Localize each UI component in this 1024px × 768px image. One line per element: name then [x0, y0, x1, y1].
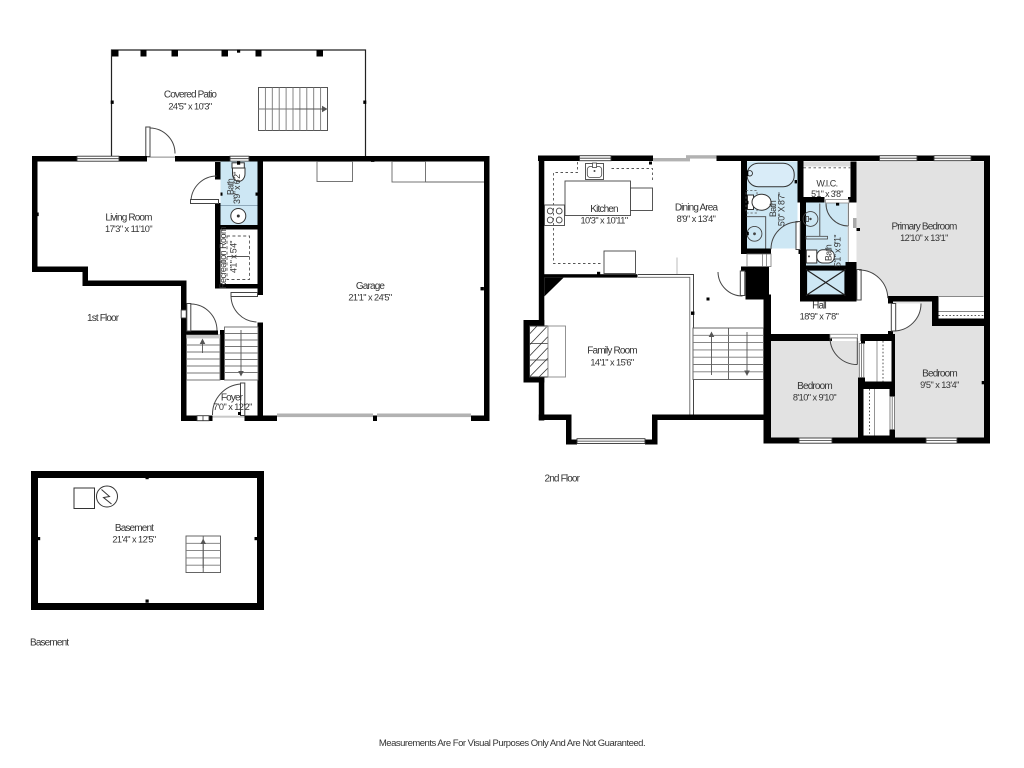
- svg-text:5'1" x 3'8": 5'1" x 3'8": [811, 189, 843, 199]
- svg-text:5'1" x 9'1": 5'1" x 9'1": [833, 235, 843, 267]
- svg-text:7'0" x 12'2": 7'0" x 12'2": [213, 402, 252, 412]
- svg-text:Family Room: Family Room: [587, 346, 637, 357]
- svg-text:2nd Floor: 2nd Floor: [545, 474, 581, 485]
- svg-text:12'10" x 13'1": 12'10" x 13'1": [900, 233, 948, 243]
- svg-text:Covered Patio: Covered Patio: [164, 90, 218, 101]
- svg-text:Basement: Basement: [115, 523, 154, 534]
- svg-text:5'0" X 8'7": 5'0" X 8'7": [777, 192, 787, 226]
- svg-text:Bedroom: Bedroom: [922, 369, 957, 380]
- svg-text:Recreation Room: Recreation Room: [218, 227, 228, 289]
- svg-text:4'1" x 5'4": 4'1" x 5'4": [229, 241, 239, 273]
- svg-text:9'5" x 13'4": 9'5" x 13'4": [920, 380, 959, 390]
- svg-text:24'5" x 10'3": 24'5" x 10'3": [168, 102, 212, 112]
- svg-text:21'1" x 24'5": 21'1" x 24'5": [348, 292, 392, 302]
- svg-text:14'1" x 15'6": 14'1" x 15'6": [590, 358, 634, 368]
- svg-text:8'10" x 9'10": 8'10" x 9'10": [793, 393, 837, 403]
- svg-text:Garage: Garage: [356, 281, 386, 292]
- svg-text:Living Room: Living Room: [105, 213, 152, 224]
- svg-text:Basement: Basement: [30, 638, 69, 649]
- svg-text:Dining Area: Dining Area: [675, 203, 719, 214]
- svg-text:Hall: Hall: [812, 301, 826, 312]
- svg-text:1st Floor: 1st Floor: [87, 313, 120, 324]
- svg-text:Bedroom: Bedroom: [797, 381, 832, 392]
- svg-text:17'3" x 11'10": 17'3" x 11'10": [105, 224, 152, 234]
- svg-text:Measurements Are For Visual Pu: Measurements Are For Visual Purposes Onl…: [379, 738, 645, 749]
- svg-text:3'9" x 6'2": 3'9" x 6'2": [232, 172, 242, 204]
- svg-text:W.I.C.: W.I.C.: [816, 179, 837, 189]
- svg-text:18'9" x 7'8": 18'9" x 7'8": [800, 312, 839, 322]
- svg-text:21'4" x 12'5": 21'4" x 12'5": [112, 534, 156, 544]
- svg-text:Primary Bedroom: Primary Bedroom: [891, 222, 957, 233]
- svg-text:Kitchen: Kitchen: [590, 204, 618, 215]
- svg-text:8'9" x 13'4": 8'9" x 13'4": [677, 214, 716, 224]
- svg-text:10'3" x 10'11": 10'3" x 10'11": [580, 215, 627, 225]
